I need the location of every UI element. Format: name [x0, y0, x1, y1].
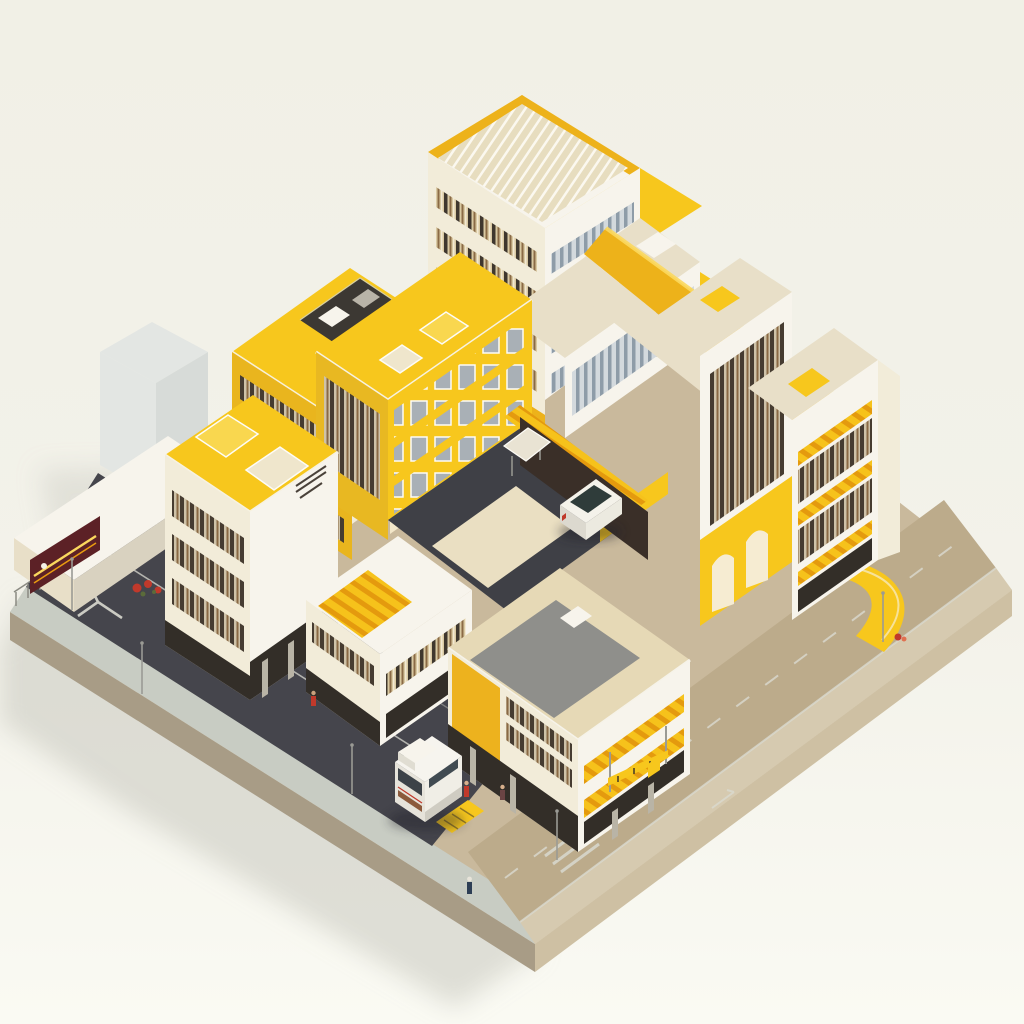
rfront-se-face [878, 360, 900, 560]
scene-render [0, 0, 1024, 1024]
pedestrian [467, 877, 472, 894]
pedestrian [500, 785, 505, 800]
pedestrian [311, 691, 316, 706]
pedestrian [464, 781, 469, 797]
isometric-building-scene [0, 0, 1024, 1024]
